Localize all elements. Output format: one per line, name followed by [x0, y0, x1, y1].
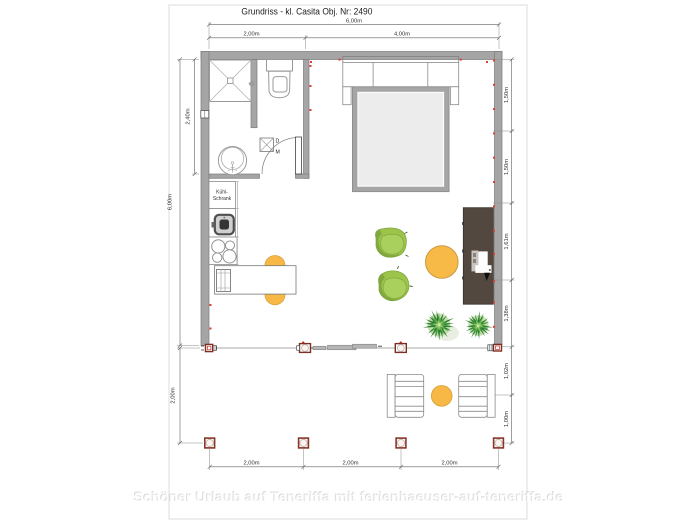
svg-text:4,00m: 4,00m [394, 32, 410, 38]
svg-text:Kühl-: Kühl- [216, 190, 228, 196]
svg-text:Schöner Urlaub auf Teneriffa m: Schöner Urlaub auf Teneriffa mit ferienh… [134, 490, 564, 506]
svg-text:M: M [276, 150, 280, 156]
svg-text:Schrank: Schrank [213, 196, 232, 202]
svg-text:6,00m: 6,00m [346, 19, 362, 25]
svg-text:1,50m: 1,50m [504, 159, 510, 175]
svg-text:2,00m: 2,00m [441, 461, 457, 467]
svg-text:1,00m: 1,00m [504, 411, 510, 427]
svg-text:1,38m: 1,38m [504, 305, 510, 321]
svg-text:1,02m: 1,02m [504, 363, 510, 379]
svg-text:2,00m: 2,00m [243, 32, 259, 38]
svg-text:2,00m: 2,00m [342, 461, 358, 467]
svg-text:Grundriss - kl. Casita Obj. Nr: Grundriss - kl. Casita Obj. Nr: 2490 [241, 6, 372, 17]
svg-text:2,40m: 2,40m [186, 108, 192, 124]
svg-text:2,00m: 2,00m [243, 461, 259, 467]
svg-text:1,61m: 1,61m [504, 233, 510, 249]
svg-text:1,50m: 1,50m [504, 87, 510, 103]
svg-text:2,00m: 2,00m [171, 387, 177, 403]
svg-text:6,00m: 6,00m [168, 194, 174, 210]
